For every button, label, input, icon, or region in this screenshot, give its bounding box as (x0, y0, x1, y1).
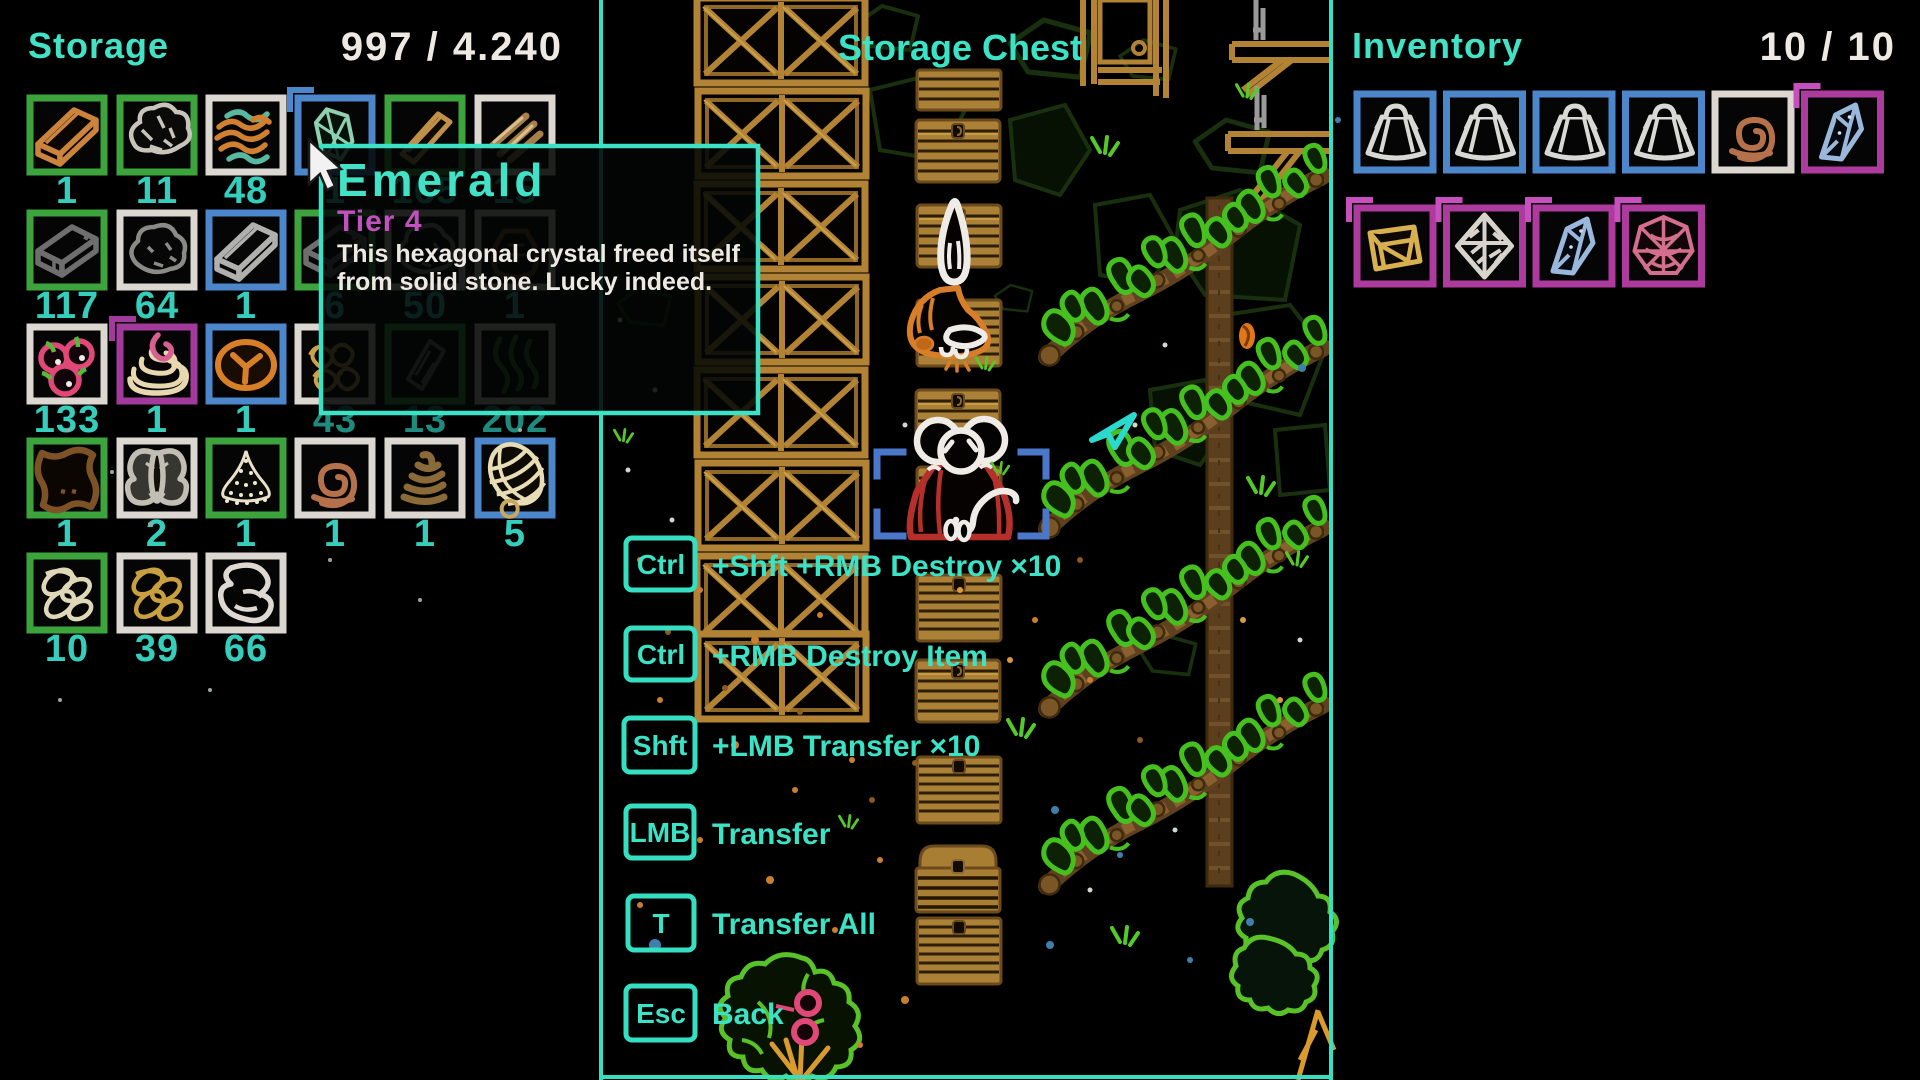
svg-text:10: 10 (45, 628, 89, 670)
svg-text:Ctrl: Ctrl (637, 639, 685, 670)
svg-text:1: 1 (56, 170, 78, 212)
svg-text:from solid stone. Lucky indeed: from solid stone. Lucky indeed. (337, 268, 712, 296)
svg-text:Back: Back (712, 998, 784, 1031)
svg-text:Transfer All: Transfer All (712, 908, 876, 941)
svg-text:LMB: LMB (630, 817, 691, 848)
svg-text:5: 5 (504, 513, 526, 555)
svg-text:11: 11 (136, 170, 178, 212)
svg-text:T: T (652, 908, 669, 939)
svg-text:1: 1 (235, 513, 257, 555)
svg-text:Inventory: Inventory (1352, 25, 1523, 66)
svg-text:66: 66 (224, 628, 268, 670)
svg-text:1: 1 (414, 513, 436, 555)
svg-text:1: 1 (146, 399, 168, 441)
svg-text:Storage: Storage (28, 25, 169, 66)
svg-text:997 / 4.240: 997 / 4.240 (341, 25, 563, 69)
svg-text:+Shft +RMB Destroy ×10: +Shft +RMB Destroy ×10 (712, 550, 1061, 583)
svg-text:Shft: Shft (633, 730, 687, 761)
svg-text:39: 39 (135, 628, 179, 670)
svg-text:10 / 10: 10 / 10 (1760, 25, 1896, 69)
svg-text:This hexagonal crystal freed i: This hexagonal crystal freed itself (337, 240, 741, 268)
svg-text:+RMB Destroy Item: +RMB Destroy Item (712, 640, 988, 673)
svg-text:1: 1 (235, 399, 257, 441)
svg-text:117: 117 (35, 285, 99, 327)
svg-text:Ctrl: Ctrl (637, 549, 685, 580)
svg-text:2: 2 (146, 513, 168, 555)
svg-text:Esc: Esc (636, 998, 686, 1029)
svg-text:48: 48 (224, 170, 268, 212)
svg-text:1: 1 (235, 285, 257, 327)
svg-text:Storage Chest: Storage Chest (838, 27, 1082, 68)
svg-text:133: 133 (34, 399, 100, 441)
svg-text:Emerald: Emerald (337, 154, 547, 206)
svg-text:Tier 4: Tier 4 (337, 205, 423, 238)
svg-text:64: 64 (135, 285, 179, 327)
svg-text:Transfer: Transfer (712, 818, 831, 851)
svg-text:1: 1 (324, 513, 346, 555)
svg-text:1: 1 (56, 513, 78, 555)
svg-text:+LMB Transfer ×10: +LMB Transfer ×10 (712, 730, 980, 763)
